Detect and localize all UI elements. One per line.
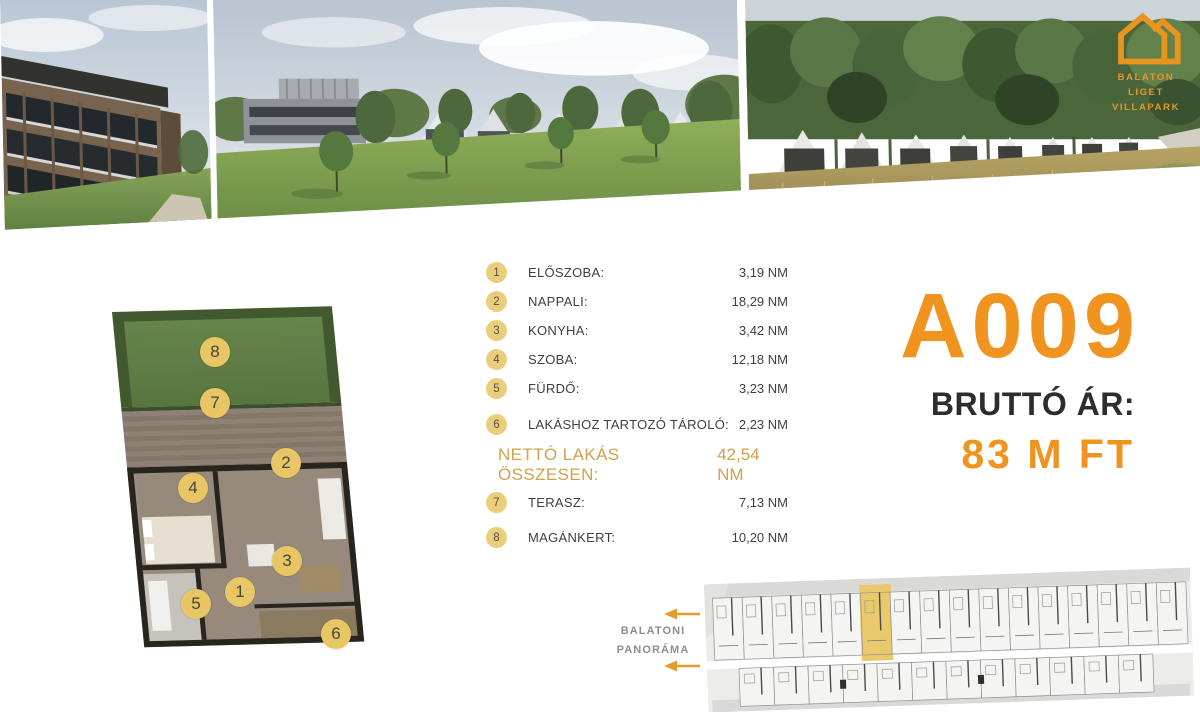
room-row: 4SZOBA:12,18 NM bbox=[486, 345, 788, 374]
room-value: 3,19 NM bbox=[739, 265, 788, 280]
room-row: 2NAPPALI:18,29 NM bbox=[486, 287, 788, 316]
net-total-row: NETTÓ LAKÁS ÖSSZESEN: 42,54 NM bbox=[486, 453, 788, 477]
room-label: FÜRDŐ: bbox=[528, 381, 580, 396]
floorplan-marker-1: 1 bbox=[225, 577, 255, 607]
room-value: 7,13 NM bbox=[739, 495, 788, 510]
logo-text-line2: VILLAPARK bbox=[1098, 100, 1194, 115]
floorplan-marker-6: 6 bbox=[321, 619, 351, 649]
photo-apartment-building-image bbox=[0, 0, 212, 232]
floorplan-marker-2: 2 bbox=[271, 448, 301, 478]
room-number-badge: 8 bbox=[486, 527, 507, 548]
room-value: 18,29 NM bbox=[732, 294, 788, 309]
site-plan bbox=[700, 560, 1200, 712]
net-total-label: NETTÓ LAKÁS ÖSSZESEN: bbox=[498, 445, 717, 485]
room-number-badge: 1 bbox=[486, 262, 507, 283]
room-label: SZOBA: bbox=[528, 352, 577, 367]
room-row: 1ELŐSZOBA:3,19 NM bbox=[486, 258, 788, 287]
floorplan-marker-4: 4 bbox=[178, 473, 208, 503]
floorplan-terrace bbox=[121, 402, 347, 468]
photo-villapark-lawn bbox=[213, 0, 742, 232]
panorama-line2: PANORÁMA bbox=[598, 641, 708, 660]
photo-villapark-lawn-image bbox=[213, 0, 742, 232]
floorplan-marker-7: 7 bbox=[200, 388, 230, 418]
room-value: 12,18 NM bbox=[732, 352, 788, 367]
room-label: LAKÁSHOZ TARTOZÓ TÁROLÓ: bbox=[528, 417, 729, 432]
room-row: 6LAKÁSHOZ TARTOZÓ TÁROLÓ:2,23 NM bbox=[486, 410, 788, 439]
room-label: NAPPALI: bbox=[528, 294, 588, 309]
unit-code: A009 bbox=[900, 282, 1140, 370]
photo-apartment-building bbox=[0, 0, 212, 232]
floorplan-marker-5: 5 bbox=[181, 589, 211, 619]
room-row: 7TERASZ:7,13 NM bbox=[486, 485, 788, 520]
room-value: 3,23 NM bbox=[739, 381, 788, 396]
room-label: MAGÁNKERT: bbox=[528, 530, 615, 545]
room-label: TERASZ: bbox=[528, 495, 585, 510]
floorplan-marker-3: 3 bbox=[272, 546, 302, 576]
price-label: BRUTTÓ ÁR: bbox=[900, 386, 1135, 423]
room-number-badge: 7 bbox=[486, 492, 507, 513]
room-row: 5FÜRDŐ:3,23 NM bbox=[486, 374, 788, 403]
room-row: 8MAGÁNKERT:10,20 NM bbox=[486, 520, 788, 555]
room-number-badge: 3 bbox=[486, 320, 507, 341]
unit-panel: A009 BRUTTÓ ÁR: 83 M FT bbox=[900, 282, 1135, 478]
property-datasheet: BALATON LIGET VILLAPARK 12345678 1ELŐSZO… bbox=[0, 0, 1200, 716]
room-list-area: 1ELŐSZOBA:3,19 NM2NAPPALI:18,29 NM3KONYH… bbox=[486, 258, 788, 555]
room-label: ELŐSZOBA: bbox=[528, 265, 604, 280]
room-value: 3,42 NM bbox=[739, 323, 788, 338]
room-number-badge: 6 bbox=[486, 414, 507, 435]
room-number-badge: 2 bbox=[486, 291, 507, 312]
site-plan-drawing bbox=[700, 560, 1200, 712]
room-label: KONYHA: bbox=[528, 323, 589, 338]
sofa bbox=[318, 478, 347, 539]
room-row: 3KONYHA:3,42 NM bbox=[486, 316, 788, 345]
panorama-caption: BALATONI PANORÁMA bbox=[598, 604, 708, 660]
floorplan-marker-8: 8 bbox=[200, 337, 230, 367]
logo-text-line1: BALATON LIGET bbox=[1098, 70, 1194, 100]
dining-table bbox=[299, 566, 341, 592]
net-total-value: 42,54 NM bbox=[717, 445, 788, 485]
price-value: 83 M FT bbox=[900, 431, 1135, 478]
room-number-badge: 4 bbox=[486, 349, 507, 370]
panorama-line1: BALATONI bbox=[598, 622, 708, 641]
logo-houses-icon bbox=[1111, 8, 1181, 70]
logo: BALATON LIGET VILLAPARK bbox=[1098, 8, 1194, 115]
outdoor-list: 7TERASZ:7,13 NM8MAGÁNKERT:10,20 NM bbox=[486, 485, 788, 555]
room-number-badge: 5 bbox=[486, 378, 507, 399]
room-list: 1ELŐSZOBA:3,19 NM2NAPPALI:18,29 NM3KONYH… bbox=[486, 258, 788, 439]
room-value: 2,23 NM bbox=[739, 417, 788, 432]
photo-band bbox=[0, 0, 1200, 232]
room-value: 10,20 NM bbox=[732, 530, 788, 545]
